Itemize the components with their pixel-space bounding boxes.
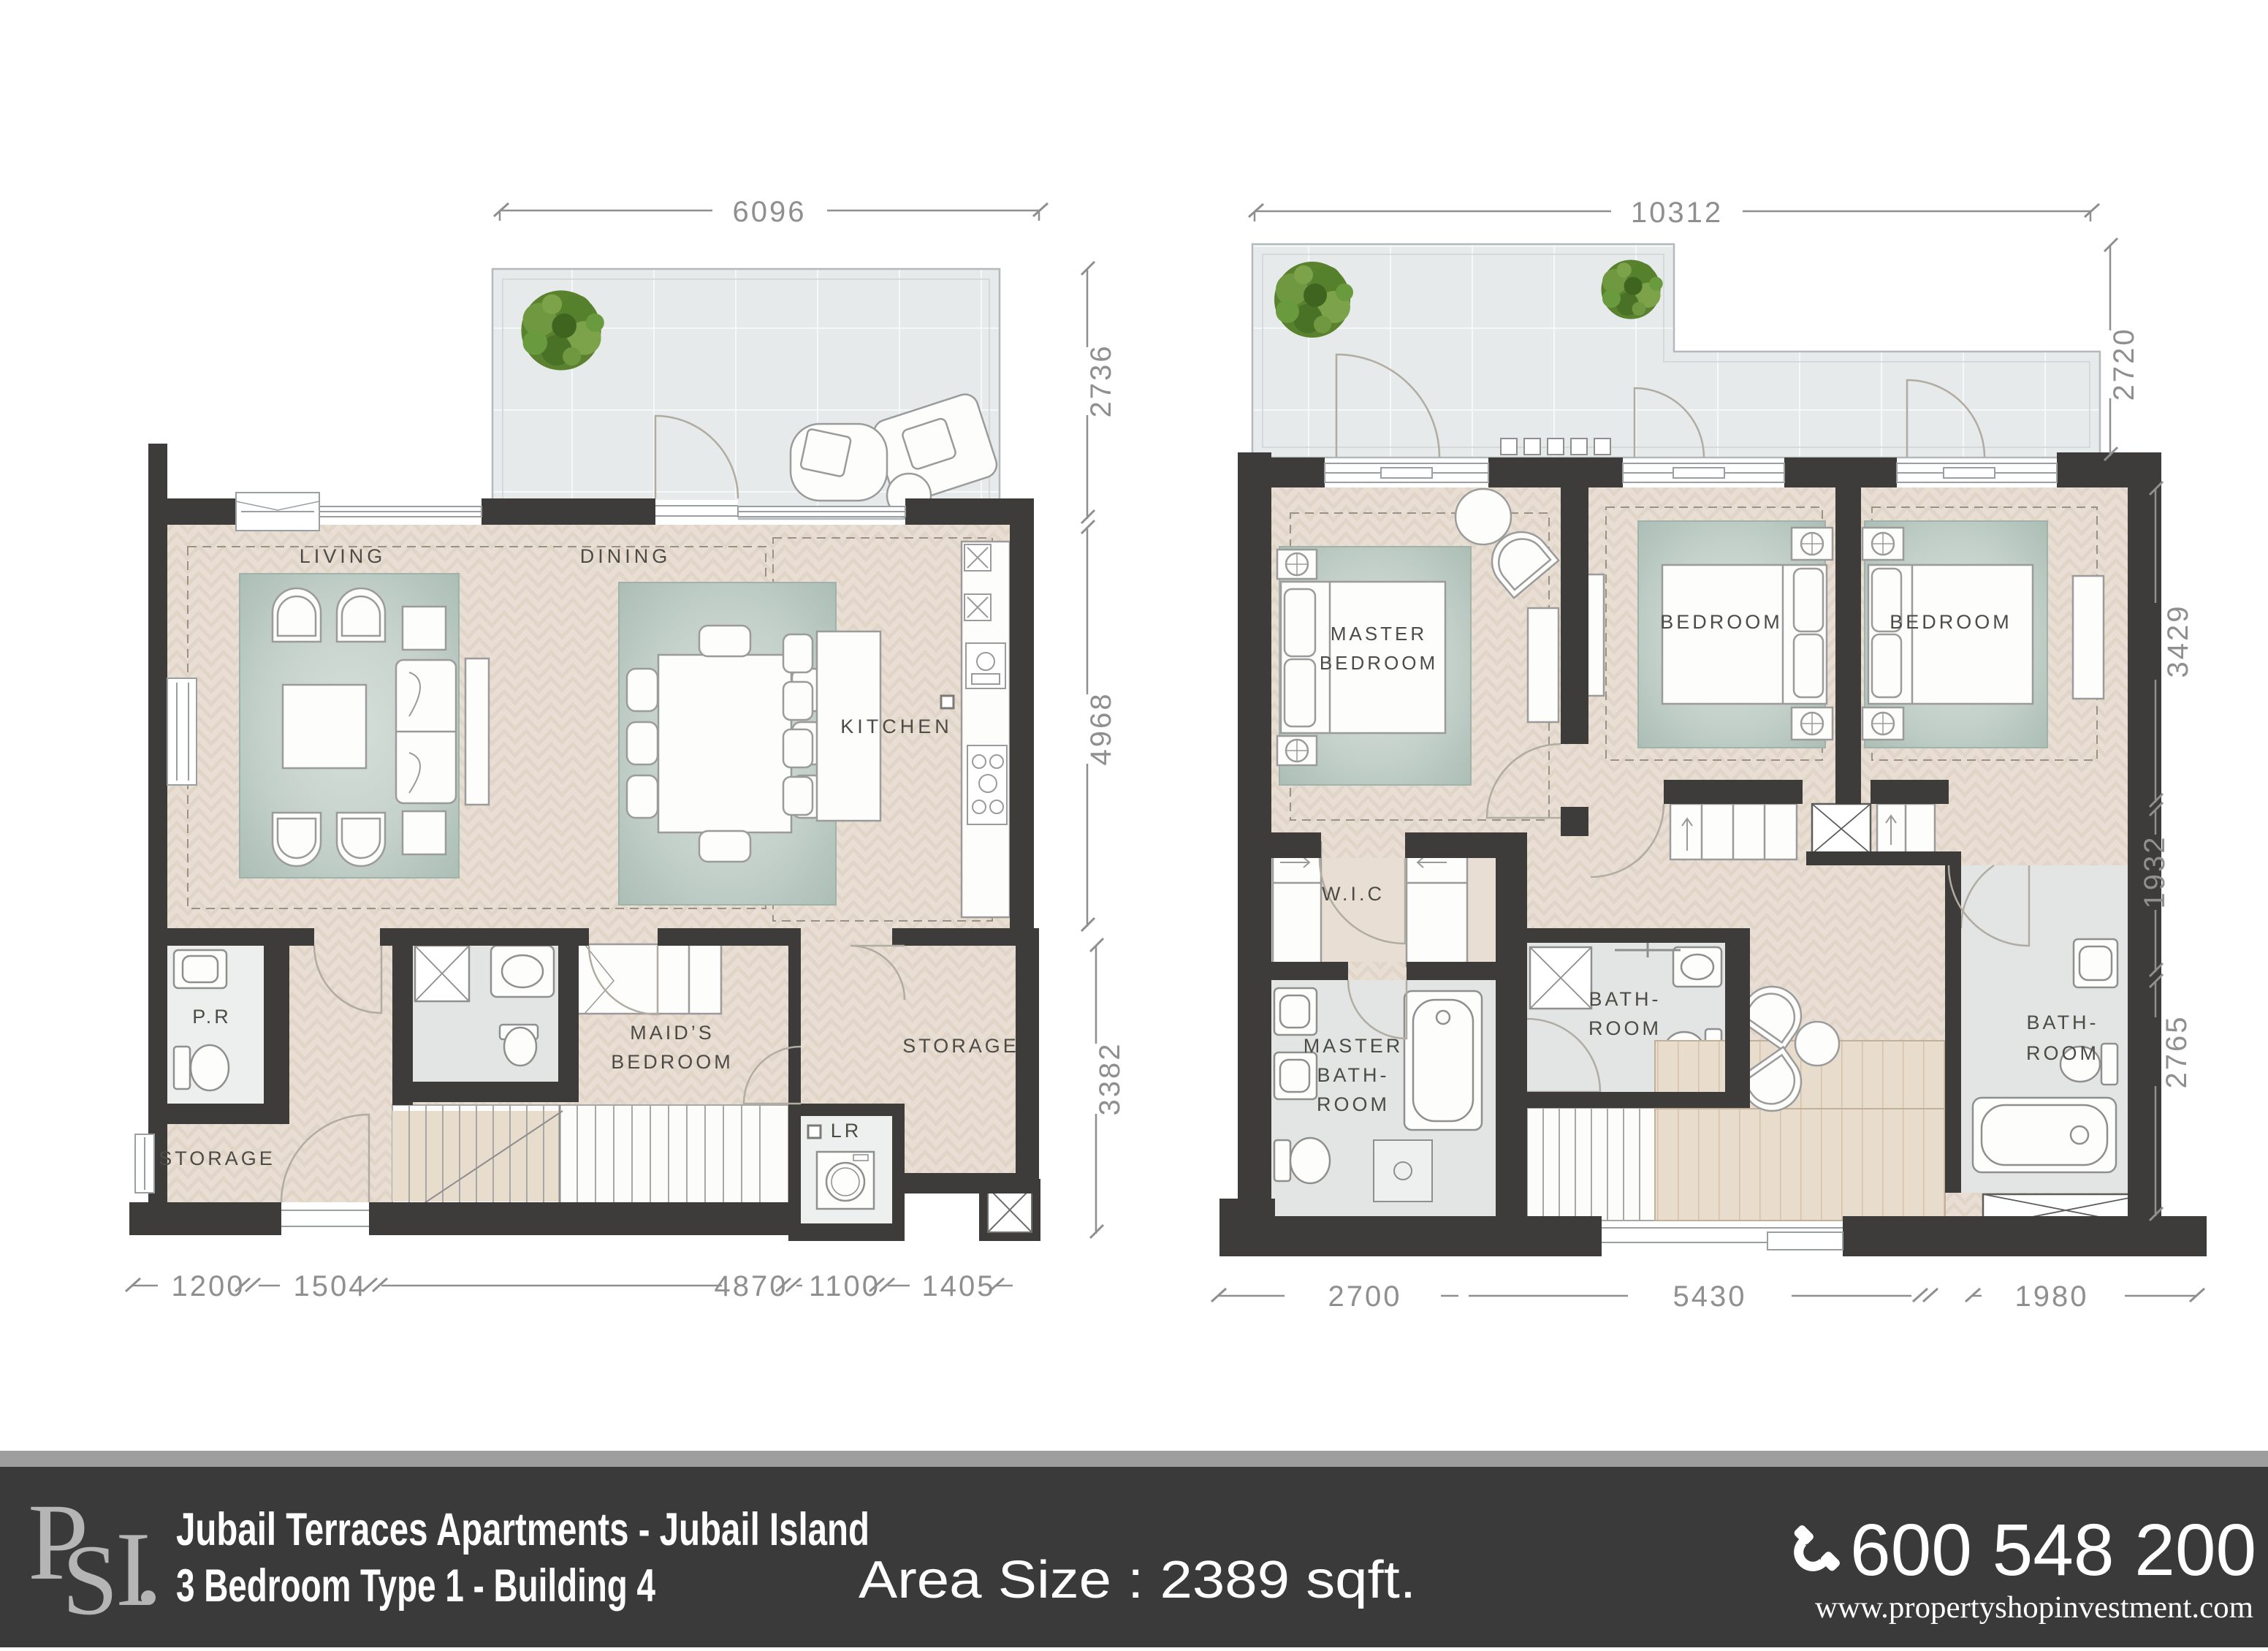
svg-text:BEDROOM: BEDROOM: [611, 1051, 734, 1073]
svg-text:ROOM: ROOM: [2026, 1042, 2099, 1064]
svg-text:6096: 6096: [733, 196, 807, 228]
svg-text:www.propertyshopinvestment.com: www.propertyshopinvestment.com: [1815, 1591, 2253, 1625]
svg-text:BATH-: BATH-: [1317, 1064, 1390, 1086]
svg-text:2720: 2720: [2108, 327, 2140, 401]
svg-text:W.I.C: W.I.C: [1322, 883, 1385, 905]
svg-text:1932: 1932: [2139, 835, 2171, 909]
svg-text:LR: LR: [831, 1120, 862, 1142]
svg-text:1100: 1100: [809, 1270, 880, 1302]
svg-text:1405: 1405: [922, 1270, 996, 1302]
svg-text:BEDROOM: BEDROOM: [1890, 611, 2012, 633]
svg-text:I: I: [115, 1510, 151, 1628]
svg-text:BEDROOM: BEDROOM: [1320, 652, 1438, 674]
svg-text:5430: 5430: [1673, 1280, 1747, 1313]
svg-text:3429: 3429: [2162, 604, 2194, 678]
svg-text:STORAGE: STORAGE: [159, 1147, 275, 1169]
svg-text:4968: 4968: [1085, 692, 1117, 766]
svg-text:ROOM: ROOM: [1317, 1093, 1390, 1115]
svg-text:LIVING: LIVING: [300, 545, 387, 567]
svg-text:10312: 10312: [1631, 197, 1723, 229]
svg-text:ROOM: ROOM: [1588, 1017, 1662, 1039]
svg-text:BATH-: BATH-: [1589, 988, 1662, 1010]
svg-text:4870: 4870: [715, 1270, 788, 1302]
svg-text:600 548 200: 600 548 200: [1850, 1509, 2256, 1591]
svg-text:Area Size : 2389 sqft.: Area Size : 2389 sqft.: [859, 1551, 1416, 1609]
svg-text:MASTER: MASTER: [1304, 1035, 1404, 1057]
svg-text:1504: 1504: [294, 1270, 368, 1302]
svg-text:MAID’S: MAID’S: [630, 1022, 715, 1044]
svg-text:S: S: [62, 1524, 118, 1636]
svg-text:3382: 3382: [1094, 1042, 1126, 1116]
svg-text:2765: 2765: [2161, 1015, 2193, 1089]
svg-text:MASTER: MASTER: [1331, 623, 1427, 645]
svg-text:2700: 2700: [1328, 1280, 1402, 1313]
svg-text:2736: 2736: [1085, 344, 1117, 418]
svg-text:DINING: DINING: [580, 545, 671, 567]
svg-text:STORAGE: STORAGE: [902, 1035, 1019, 1057]
svg-text:BEDROOM: BEDROOM: [1660, 611, 1783, 633]
svg-text:3 Bedroom Type 1 - Building 4: 3 Bedroom Type 1 - Building 4: [176, 1560, 655, 1612]
svg-text:BATH-: BATH-: [2027, 1012, 2099, 1033]
svg-text:1200: 1200: [172, 1270, 246, 1302]
svg-text:P.R: P.R: [192, 1006, 232, 1028]
svg-text:Jubail Terraces Apartments - J: Jubail Terraces Apartments - Jubail Isla…: [176, 1504, 869, 1555]
svg-text:1980: 1980: [2015, 1280, 2089, 1313]
svg-text:KITCHEN: KITCHEN: [840, 716, 953, 737]
